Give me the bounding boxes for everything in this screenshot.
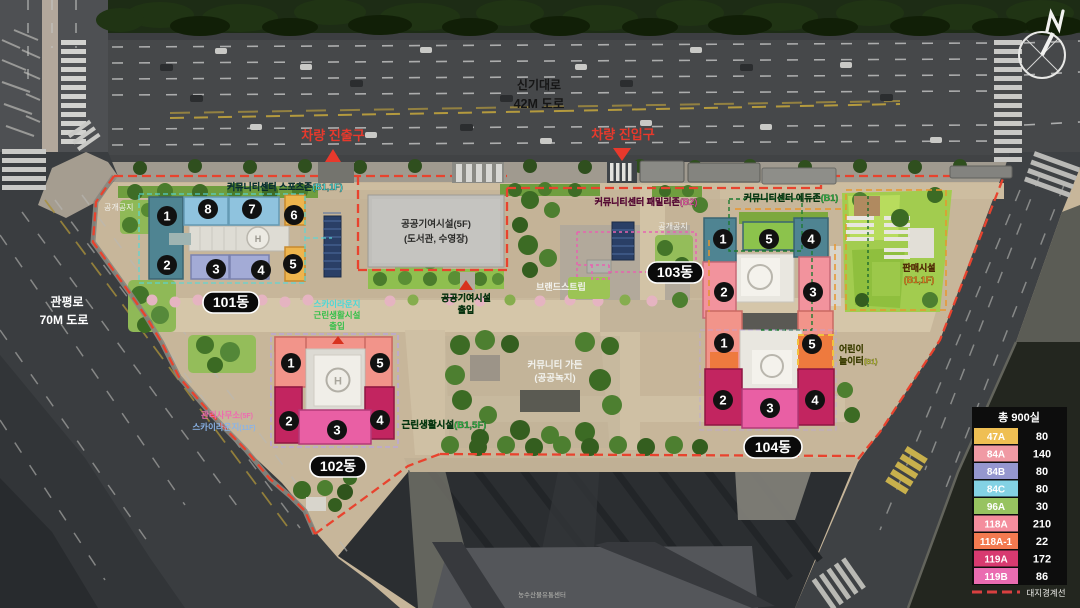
- svg-text:3: 3: [212, 262, 219, 277]
- svg-text:2: 2: [163, 258, 170, 273]
- svg-text:차량 진출구: 차량 진출구: [301, 128, 364, 143]
- svg-text:172: 172: [1033, 554, 1051, 566]
- svg-text:6: 6: [290, 208, 297, 223]
- svg-text:총 900실: 총 900실: [998, 410, 1040, 424]
- svg-text:84C: 84C: [987, 485, 1005, 496]
- svg-text:4: 4: [376, 413, 384, 428]
- svg-text:3: 3: [766, 401, 773, 416]
- svg-text:1: 1: [287, 356, 294, 371]
- svg-text:1: 1: [720, 336, 727, 351]
- svg-text:5: 5: [376, 356, 383, 371]
- svg-text:브랜드스트립: 브랜드스트립: [536, 281, 586, 292]
- svg-text:84B: 84B: [987, 467, 1005, 478]
- svg-text:관평로: 관평로: [50, 294, 83, 309]
- svg-text:118A-1: 118A-1: [980, 537, 1013, 548]
- svg-text:86: 86: [1036, 571, 1048, 583]
- svg-text:47A: 47A: [987, 432, 1005, 443]
- svg-text:커뮤니티센터 패밀리존(B2): 커뮤니티센터 패밀리존(B2): [595, 196, 698, 207]
- svg-text:118A: 118A: [984, 520, 1007, 531]
- svg-text:22: 22: [1036, 536, 1048, 548]
- svg-text:스카이라운지: 스카이라운지: [314, 299, 361, 309]
- svg-text:대지경계선: 대지경계선: [1026, 588, 1065, 598]
- svg-text:근린생활시설(B1,5F): 근린생활시설(B1,5F): [402, 419, 487, 431]
- svg-text:커뮤니티센터 스포츠존(B1,1F): 커뮤니티센터 스포츠존(B1,1F): [227, 181, 343, 192]
- svg-text:103동: 103동: [657, 264, 693, 280]
- svg-text:차량 진입구: 차량 진입구: [591, 127, 654, 142]
- svg-text:104동: 104동: [755, 439, 791, 455]
- svg-text:어린이: 어린이: [839, 343, 864, 354]
- svg-text:80: 80: [1036, 484, 1048, 496]
- svg-text:커뮤니티 가든: 커뮤니티 가든: [527, 359, 582, 371]
- svg-text:(B1,1F): (B1,1F): [904, 275, 935, 285]
- svg-text:5: 5: [808, 337, 815, 352]
- svg-text:(공공녹지): (공공녹지): [534, 372, 575, 384]
- svg-text:101동: 101동: [213, 294, 249, 310]
- svg-text:2: 2: [719, 393, 726, 408]
- svg-text:신기대로: 신기대로: [517, 77, 561, 92]
- svg-text:42M 도로: 42M 도로: [514, 97, 565, 111]
- svg-text:공공기여시설: 공공기여시설: [441, 292, 491, 303]
- svg-text:1: 1: [163, 209, 170, 224]
- svg-text:출입: 출입: [329, 321, 345, 331]
- svg-text:70M 도로: 70M 도로: [40, 313, 89, 327]
- svg-text:출입: 출입: [458, 304, 475, 315]
- svg-text:커뮤니티센터 에듀존(B1): 커뮤니티센터 에듀존(B1): [744, 192, 839, 203]
- svg-text:4: 4: [807, 232, 815, 247]
- svg-text:공개공지: 공개공지: [658, 221, 687, 231]
- svg-text:119B: 119B: [984, 572, 1007, 583]
- svg-text:1: 1: [719, 232, 726, 247]
- svg-text:4: 4: [811, 393, 819, 408]
- svg-text:30: 30: [1036, 501, 1048, 513]
- svg-text:3: 3: [333, 423, 340, 438]
- svg-text:판매시설: 판매시설: [902, 262, 935, 273]
- svg-text:80: 80: [1036, 431, 1048, 443]
- svg-text:H: H: [334, 376, 342, 388]
- svg-text:96A: 96A: [987, 502, 1005, 513]
- svg-text:102동: 102동: [320, 458, 356, 474]
- svg-text:140: 140: [1033, 449, 1051, 461]
- svg-text:119A: 119A: [984, 555, 1007, 566]
- svg-text:84A: 84A: [987, 450, 1005, 461]
- svg-text:3: 3: [809, 285, 816, 300]
- svg-text:5: 5: [765, 232, 772, 247]
- svg-text:4: 4: [257, 263, 265, 278]
- svg-text:농수산물유통센터: 농수산물유통센터: [518, 590, 566, 599]
- svg-text:공개공지: 공개공지: [104, 202, 133, 212]
- svg-text:(도서관, 수영장): (도서관, 수영장): [404, 233, 468, 245]
- svg-text:7: 7: [248, 202, 255, 217]
- svg-text:2: 2: [285, 414, 292, 429]
- svg-text:8: 8: [204, 202, 211, 217]
- svg-text:H: H: [255, 234, 262, 244]
- svg-text:80: 80: [1036, 466, 1048, 478]
- svg-text:2: 2: [720, 285, 727, 300]
- svg-text:공공기여시설(5F): 공공기여시설(5F): [401, 218, 471, 230]
- svg-text:5: 5: [289, 257, 296, 272]
- svg-text:210: 210: [1033, 519, 1051, 531]
- svg-text:근린생활시설: 근린생활시설: [314, 310, 361, 320]
